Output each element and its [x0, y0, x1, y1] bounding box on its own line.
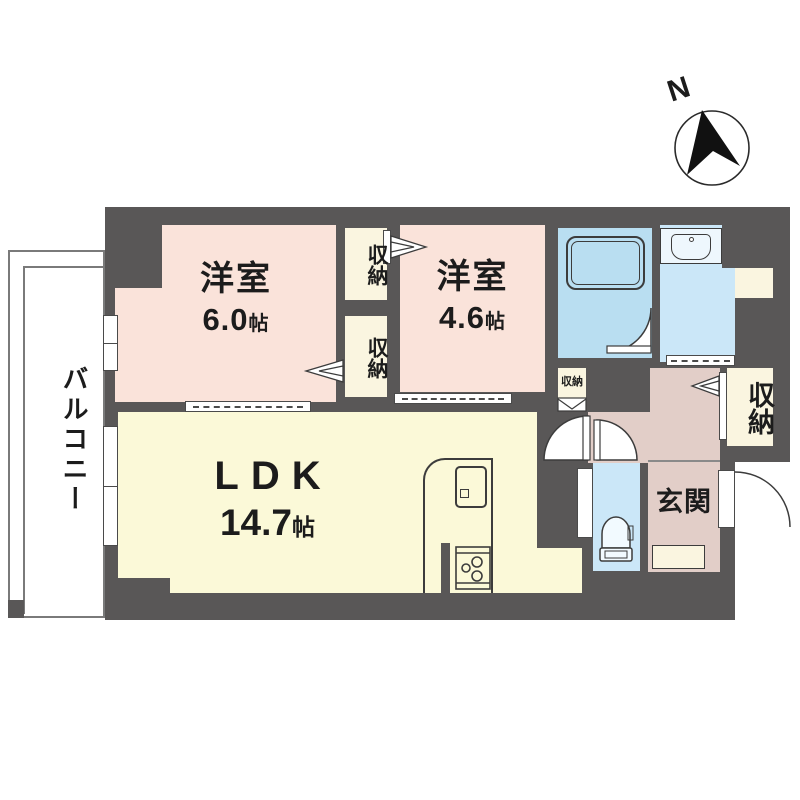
- bedroom1-name: 洋室: [136, 262, 336, 298]
- bedroom2-label: 洋室 4.6帖: [400, 260, 545, 334]
- ldk-size: 14.7帖: [155, 504, 380, 543]
- storage-entrance-threshold: [719, 372, 727, 440]
- kitchen-sink: [455, 466, 487, 508]
- storage-small-label: 収納: [558, 377, 586, 389]
- bedroom2-name: 洋室: [400, 260, 545, 296]
- sliding-door-bedroom2: [394, 393, 512, 404]
- storage-middle-top-label: 収納: [345, 236, 387, 294]
- bedroom1-label: 洋室 6.0帖: [136, 262, 336, 336]
- niche: [735, 268, 773, 298]
- vanity-faucet: [689, 237, 694, 242]
- kitchen-wall-stub: [441, 543, 450, 593]
- ldk-floor-ext: [537, 548, 582, 593]
- storage-entrance-label: 収納: [727, 376, 773, 440]
- ldk-name: LDK: [155, 455, 380, 497]
- bedroom1-size: 6.0帖: [136, 304, 336, 337]
- entrance-label: 玄関: [646, 488, 722, 516]
- sliding-door-washroom: [666, 355, 735, 366]
- hall-floor-upper: [650, 368, 720, 412]
- wall-patch-washroom: [722, 225, 735, 268]
- hall-floor: [588, 412, 720, 463]
- bathtub: [566, 236, 645, 290]
- window-ldk: [103, 426, 118, 546]
- wall-step-ldk: [118, 578, 170, 593]
- ldk-label: LDK 14.7帖: [155, 455, 380, 543]
- bedroom2-size: 4.6帖: [400, 302, 545, 335]
- balcony-label: バルコニー: [27, 355, 87, 525]
- sliding-door-bedroom1: [185, 401, 311, 412]
- compass-north-label: N: [664, 71, 694, 108]
- pipe-space: [577, 468, 593, 538]
- storage-middle-bottom-label: 収納: [345, 328, 387, 388]
- compass-icon: [675, 110, 749, 185]
- balcony-corner-block: [8, 600, 24, 618]
- front-door-arc: [735, 472, 790, 527]
- kitchen-sink-drain: [460, 489, 469, 498]
- window-bedroom1: [103, 315, 118, 371]
- shoe-cabinet: [652, 545, 705, 569]
- toilet-floor: [593, 463, 640, 571]
- floor-plan: N バルコニー 洋室 6.0帖 洋室 4.6帖 LDK 14.7帖 玄関 収納 …: [0, 0, 800, 800]
